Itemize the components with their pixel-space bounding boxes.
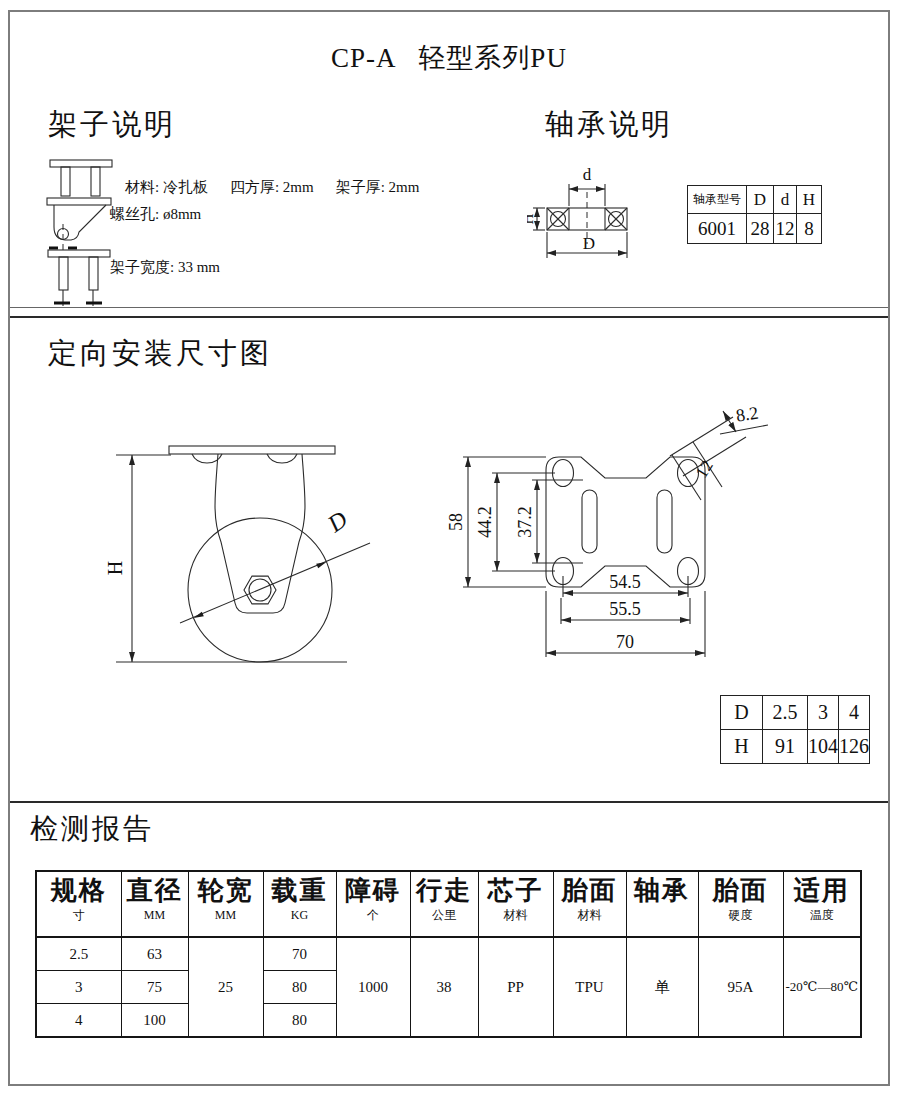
- cell-tread-material: TPU: [553, 937, 626, 1037]
- header-temperature: 适用 温度: [783, 871, 861, 937]
- dh-h-val-3: 126: [839, 730, 870, 764]
- plate-dim-55-5: 55.5: [609, 599, 641, 619]
- report-row-1: 2.5 63 25 70 1000 38 PP TPU 单 95A -20℃—8…: [36, 937, 861, 971]
- header-hardness: 胎面 硬度: [698, 871, 783, 937]
- header-obstacles: 障碍 个: [336, 871, 410, 937]
- plate-dim-12: 12: [692, 457, 717, 481]
- header-distance: 行走 公里: [410, 871, 478, 937]
- cell-diameter: 100: [121, 1004, 188, 1038]
- dh-row-d-label: D: [721, 696, 763, 730]
- header-wheel-width: 轮宽 MM: [188, 871, 263, 937]
- section-divider-1: [10, 316, 888, 318]
- cell-load: 80: [263, 971, 336, 1004]
- cell-hardness: 95A: [698, 937, 783, 1037]
- header-core: 芯子 材料: [478, 871, 553, 937]
- cell-core-material: PP: [478, 937, 553, 1037]
- header-tread: 胎面 材料: [553, 871, 626, 937]
- bearing-model-header: 轴承型号: [688, 186, 747, 214]
- frame-fork-side-icon: [44, 196, 116, 256]
- frame-width-icon: [46, 248, 112, 310]
- table-row: D 2.5 3 4: [721, 696, 870, 730]
- plate-dim-37-2: 37.2: [515, 506, 535, 538]
- caster-side-view-diagram: H D: [72, 410, 387, 710]
- cell-size: 2.5: [36, 937, 121, 971]
- bearing-dim-h-label: H: [527, 213, 536, 224]
- bearing-section-heading: 轴承说明: [545, 105, 673, 145]
- header-spec: 规格 寸: [36, 871, 121, 937]
- header-load: 载重 KG: [263, 871, 336, 937]
- bearing-spec-table: 轴承型号 D d H 6001 28 12 8: [687, 185, 822, 244]
- bearing-dim-d-label: d: [583, 165, 592, 184]
- material-label: 材料: 冷扎板: [125, 179, 208, 195]
- cell-distance: 38: [410, 937, 478, 1037]
- frame-note-width: 架子宽度: 33 mm: [110, 258, 220, 277]
- cell-temperature: -20℃—80℃: [783, 937, 861, 1037]
- bearing-H-value: 8: [797, 214, 822, 244]
- cell-diameter: 63: [121, 937, 188, 971]
- dh-h-val-1: 91: [763, 730, 808, 764]
- report-section-heading: 检测报告: [30, 810, 154, 848]
- plate-dim-44-2: 44.2: [475, 506, 495, 538]
- frame-section-heading: 架子说明: [48, 105, 176, 145]
- bearing-dim-D-label: D: [583, 234, 595, 253]
- section-divider-thin: [10, 307, 888, 308]
- mounting-plate-diagram: 58 44.2 37.2 54.5 55.5 70 8.2 12: [435, 398, 770, 698]
- bearing-cross-section-diagram: d H D: [527, 162, 687, 277]
- dh-h-val-2: 104: [808, 730, 839, 764]
- cell-size: 4: [36, 1004, 121, 1038]
- mounting-section-heading: 定向安装尺寸图: [48, 334, 272, 374]
- cell-size: 3: [36, 971, 121, 1004]
- test-report-table: 规格 寸 直径 MM 轮宽 MM 载重 KG 障碍 个 行走 公里 芯子 材料: [35, 870, 862, 1038]
- caster-dim-D-label: D: [322, 506, 352, 538]
- cell-diameter: 75: [121, 971, 188, 1004]
- cell-obstacles: 1000: [336, 937, 410, 1037]
- bearing-d-value: 12: [774, 214, 797, 244]
- dh-d-val-2: 3: [808, 696, 839, 730]
- bearing-D-value: 28: [747, 214, 774, 244]
- square-thickness-label: 四方厚: 2mm: [230, 179, 314, 195]
- bearing-model-value: 6001: [688, 214, 747, 244]
- dh-row-h-label: H: [721, 730, 763, 764]
- caster-dim-H-label: H: [104, 561, 126, 575]
- page-title: CP-A 轻型系列PU: [10, 40, 888, 76]
- header-diameter: 直径 MM: [121, 871, 188, 937]
- cell-load: 80: [263, 1004, 336, 1038]
- bearing-col-d: d: [774, 186, 797, 214]
- bearing-col-D: D: [747, 186, 774, 214]
- cell-bearing-type: 单: [626, 937, 698, 1037]
- cell-load: 70: [263, 937, 336, 971]
- plate-dim-8-2: 8.2: [734, 402, 759, 425]
- cell-wheel-width: 25: [188, 937, 263, 1037]
- dh-d-val-1: 2.5: [763, 696, 808, 730]
- plate-dim-70: 70: [616, 632, 634, 652]
- header-bearing: 轴承: [626, 871, 698, 937]
- plate-dim-54-5: 54.5: [609, 572, 641, 592]
- frame-thickness-label: 架子厚: 2mm: [336, 179, 420, 195]
- wheel-size-table: D 2.5 3 4 H 91 104 126: [720, 695, 870, 764]
- drawing-sheet: CP-A 轻型系列PU 架子说明 材料: 冷扎板四方厚: 2mm架子厚: 2mm…: [8, 10, 890, 1086]
- plate-dim-58: 58: [446, 513, 466, 531]
- bearing-col-H: H: [797, 186, 822, 214]
- section-divider-2: [10, 801, 888, 803]
- frame-note-screw-hole: 螺丝孔: ø8mm: [110, 205, 201, 224]
- table-row: H 91 104 126: [721, 730, 870, 764]
- dh-d-val-3: 4: [839, 696, 870, 730]
- report-header-row: 规格 寸 直径 MM 轮宽 MM 载重 KG 障碍 个 行走 公里 芯子 材料: [36, 871, 861, 937]
